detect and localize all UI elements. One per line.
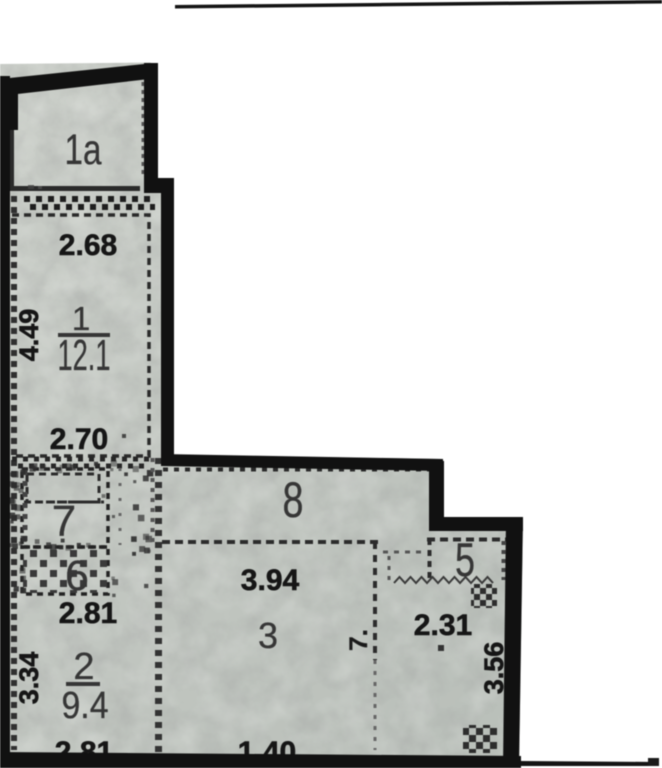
svg-text:3.34: 3.34 bbox=[14, 652, 44, 705]
svg-text:2.81: 2.81 bbox=[59, 597, 117, 630]
svg-text:1а: 1а bbox=[65, 126, 102, 174]
svg-text:7.: 7. bbox=[345, 629, 373, 651]
svg-text:2: 2 bbox=[73, 646, 94, 688]
svg-text:2.31: 2.31 bbox=[414, 609, 472, 642]
svg-text:8: 8 bbox=[283, 472, 304, 528]
svg-text:12.1: 12.1 bbox=[58, 331, 111, 380]
svg-text:4.49: 4.49 bbox=[14, 309, 44, 362]
svg-text:9.4: 9.4 bbox=[62, 685, 109, 727]
svg-text:3: 3 bbox=[258, 615, 278, 656]
svg-text:2.68: 2.68 bbox=[59, 229, 117, 262]
svg-text:2.70: 2.70 bbox=[50, 423, 108, 456]
svg-text:3.94: 3.94 bbox=[241, 564, 300, 597]
svg-text:6: 6 bbox=[65, 552, 89, 600]
